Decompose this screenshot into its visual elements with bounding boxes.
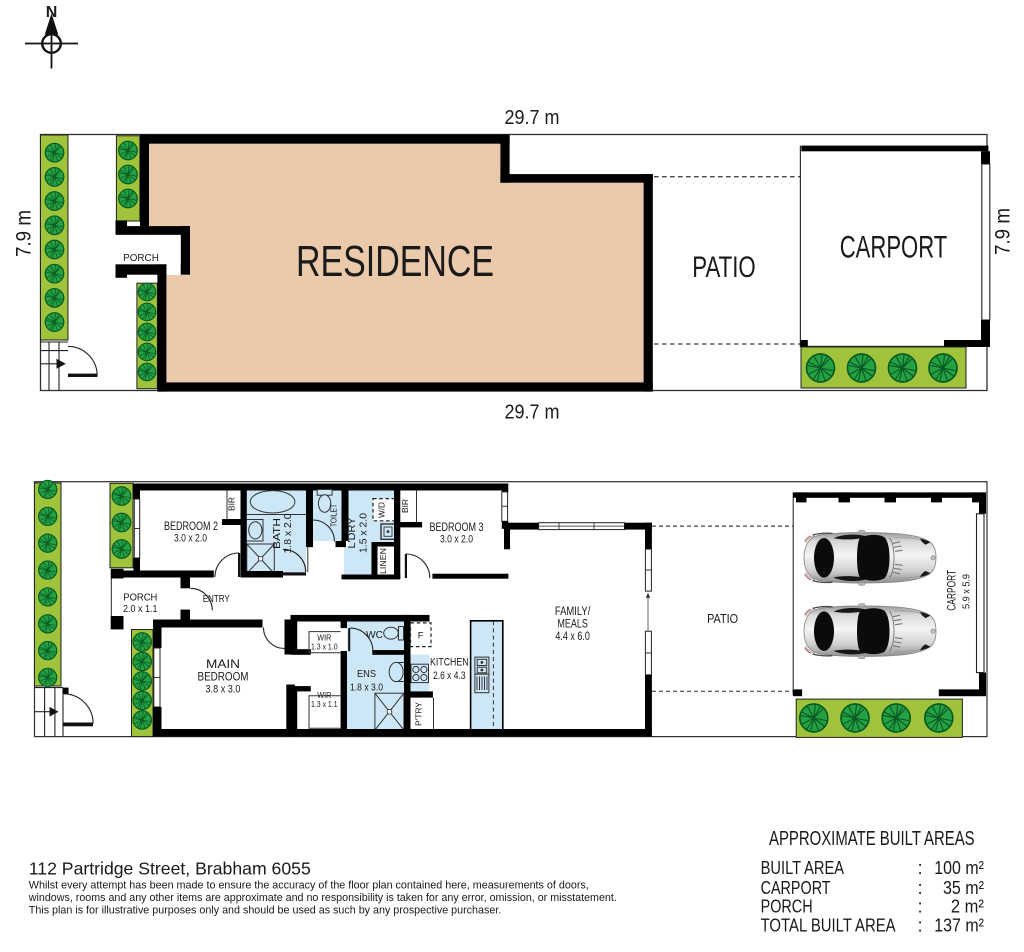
svg-text:1.3 x 1.1: 1.3 x 1.1 [311,700,338,709]
svg-text:CARPORT: CARPORT [947,570,959,611]
svg-text:1.3 x 1.0: 1.3 x 1.0 [311,643,338,652]
svg-text:1.8 x 3.0: 1.8 x 3.0 [350,682,383,694]
svg-text:Whilst every attempt has been: Whilst every attempt has been made to en… [29,880,589,892]
svg-text:WC: WC [366,629,383,641]
svg-text:WIR: WIR [317,691,331,700]
svg-text:L'DRY: L'DRY [346,518,358,549]
svg-text:This plan is for illustrative: This plan is for illustrative purposes o… [29,905,502,917]
svg-text:F: F [418,631,424,642]
svg-text:BIR: BIR [226,497,236,511]
svg-text:137 m²: 137 m² [934,914,984,935]
svg-text:2.0 x 1.1: 2.0 x 1.1 [123,603,158,615]
svg-text:LINEN: LINEN [378,548,388,574]
svg-text:PORCH: PORCH [123,592,157,604]
svg-text:29.7 m: 29.7 m [505,107,560,129]
svg-text:BEDROOM: BEDROOM [198,670,249,684]
svg-text:2.6 x 4.3: 2.6 x 4.3 [433,670,466,682]
svg-text:4.4 x 6.0: 4.4 x 6.0 [555,631,590,643]
svg-text::: : [918,895,923,916]
svg-text:ENS: ENS [357,668,376,680]
svg-text:3.0 x 2.0: 3.0 x 2.0 [440,534,473,546]
svg-text:29.7 m: 29.7 m [505,402,560,424]
svg-text:MEALS: MEALS [557,619,588,631]
svg-text:FAMILY/: FAMILY/ [555,606,591,618]
svg-text:BEDROOM 3: BEDROOM 3 [430,520,484,534]
svg-text:112 Partridge Street, Brabham: 112 Partridge Street, Brabham 6055 [29,859,311,879]
svg-text:PATIO: PATIO [707,612,738,626]
svg-text:BIR: BIR [400,499,410,513]
svg-text:BEDROOM 2: BEDROOM 2 [164,519,218,533]
svg-text:1.8 x 2.0: 1.8 x 2.0 [282,513,294,553]
svg-text::: : [918,914,923,935]
svg-text:APPROXIMATE BUILT AREAS: APPROXIMATE BUILT AREAS [769,828,975,850]
svg-text:7.9 m: 7.9 m [13,210,36,257]
svg-text:windows, rooms and any other i: windows, rooms and any other items are a… [28,892,617,904]
svg-text:RESIDENCE: RESIDENCE [296,237,494,286]
svg-text:ENTRY: ENTRY [203,593,230,605]
svg-text:P'TRY: P'TRY [414,702,424,726]
svg-text:PATIO: PATIO [692,251,756,284]
svg-text:BUILT AREA: BUILT AREA [761,857,845,878]
svg-text:CARPORT: CARPORT [840,229,948,265]
svg-text:3.8 x 3.0: 3.8 x 3.0 [206,684,241,696]
svg-text:WIR: WIR [317,634,331,643]
svg-text:1.5 x 2.0: 1.5 x 2.0 [358,513,370,553]
svg-text:TOTAL BUILT AREA: TOTAL BUILT AREA [761,914,897,935]
svg-text:2 m²: 2 m² [951,895,984,916]
svg-text::: : [918,857,923,878]
svg-text:PORCH: PORCH [123,252,159,264]
svg-text:100 m²: 100 m² [934,857,984,878]
svg-text:5.9 x 5.9: 5.9 x 5.9 [961,574,973,609]
svg-text:KITCHEN: KITCHEN [430,657,469,669]
svg-text:W/D: W/D [378,502,387,518]
svg-text:TOILET: TOILET [329,504,339,527]
svg-text:7.9 m: 7.9 m [992,208,1015,255]
svg-text:3.0 x 2.0: 3.0 x 2.0 [174,533,207,545]
svg-text:PORCH: PORCH [761,895,813,916]
